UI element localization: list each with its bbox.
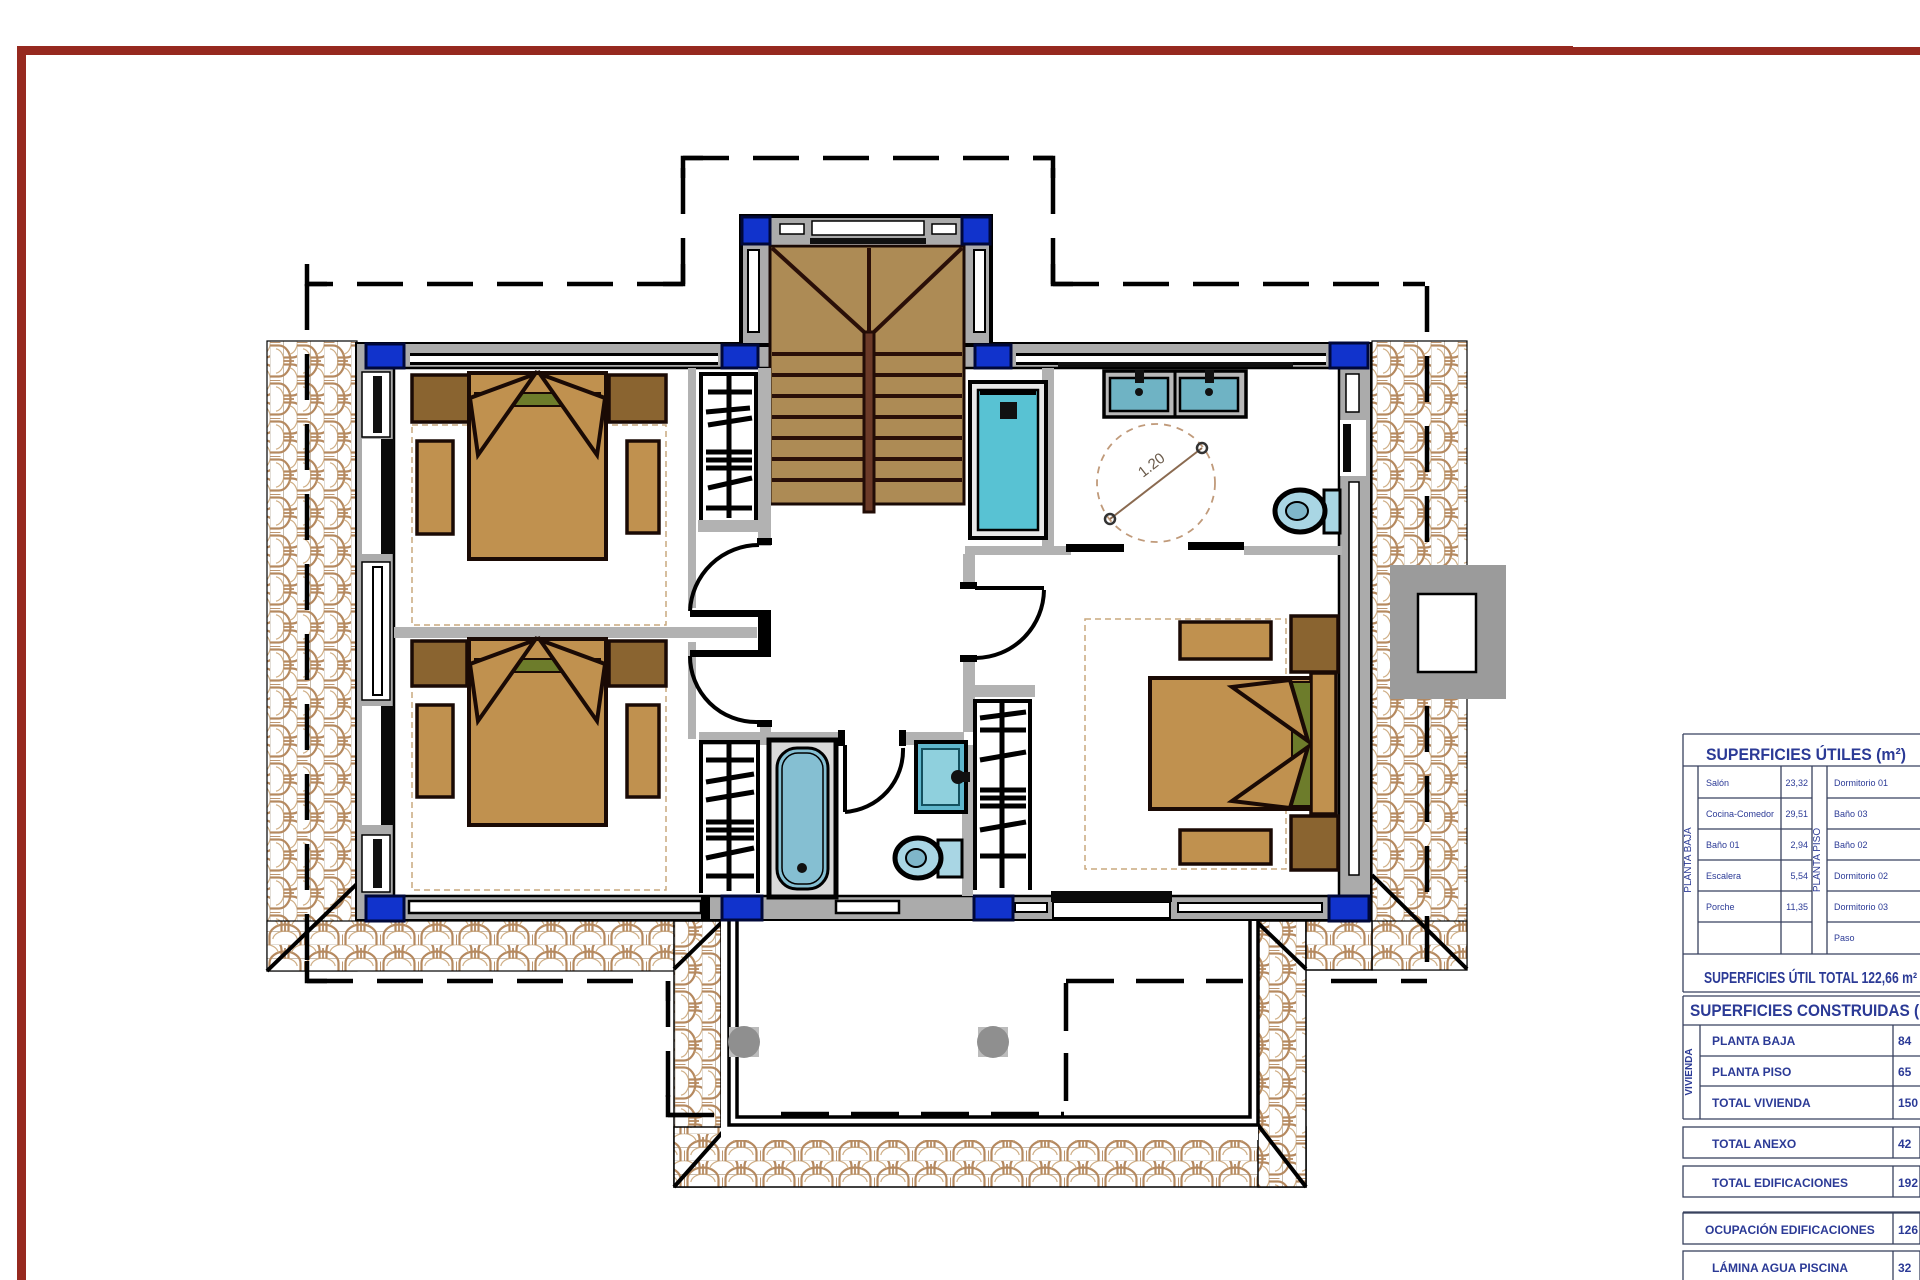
svg-text:SUPERFICIES ÚTIL TOTAL 122,66: SUPERFICIES ÚTIL TOTAL 122,66 m² [1704,969,1917,987]
svg-text:VIVIENDA: VIVIENDA [1684,1048,1695,1095]
svg-text:Baño 01: Baño 01 [1706,840,1740,850]
svg-text:11,35: 11,35 [1786,902,1808,912]
svg-text:PLANTA BAJA: PLANTA BAJA [1683,827,1694,893]
svg-text:TOTAL VIVIENDA: TOTAL VIVIENDA [1712,1096,1811,1110]
svg-text:Baño 03: Baño 03 [1834,809,1868,819]
svg-text:SUPERFICIES CONSTRUIDAS (m²: SUPERFICIES CONSTRUIDAS (m² [1690,1002,1920,1020]
svg-text:150: 150 [1898,1096,1918,1110]
svg-text:192: 192 [1898,1176,1918,1190]
svg-text:PLANTA PISO: PLANTA PISO [1712,1065,1791,1079]
svg-text:84: 84 [1898,1034,1912,1048]
svg-text:65: 65 [1898,1065,1912,1079]
svg-text:5,54: 5,54 [1790,871,1808,881]
svg-text:PLANTA PISO: PLANTA PISO [1812,828,1823,893]
svg-text:42: 42 [1898,1137,1912,1151]
svg-text:29,51: 29,51 [1785,809,1808,819]
svg-text:2,94: 2,94 [1790,840,1808,850]
svg-text:Escalera: Escalera [1706,871,1741,881]
svg-text:Dormitorio 01: Dormitorio 01 [1834,778,1888,788]
svg-text:LÁMINA AGUA PISCINA: LÁMINA AGUA PISCINA [1712,1260,1848,1275]
svg-text:Dormitorio 03: Dormitorio 03 [1834,902,1888,912]
svg-text:PLANTA BAJA: PLANTA BAJA [1712,1034,1796,1048]
svg-text:Salón: Salón [1706,778,1729,788]
svg-text:Porche: Porche [1706,902,1735,912]
svg-text:23,32: 23,32 [1785,778,1808,788]
svg-text:Dormitorio 02: Dormitorio 02 [1834,871,1888,881]
svg-text:Baño 02: Baño 02 [1834,840,1868,850]
svg-text:TOTAL EDIFICACIONES: TOTAL EDIFICACIONES [1712,1176,1848,1190]
svg-text:32: 32 [1898,1261,1912,1275]
svg-text:SUPERFICIES ÚTILES (m²): SUPERFICIES ÚTILES (m²) [1706,745,1906,764]
svg-text:TOTAL ANEXO: TOTAL ANEXO [1712,1137,1796,1151]
svg-text:126: 126 [1898,1223,1918,1237]
svg-text:Cocina-Comedor: Cocina-Comedor [1706,809,1774,819]
svg-text:OCUPACIÓN EDIFICACIONES: OCUPACIÓN EDIFICACIONES [1705,1222,1875,1237]
svg-text:Paso: Paso [1834,933,1855,943]
